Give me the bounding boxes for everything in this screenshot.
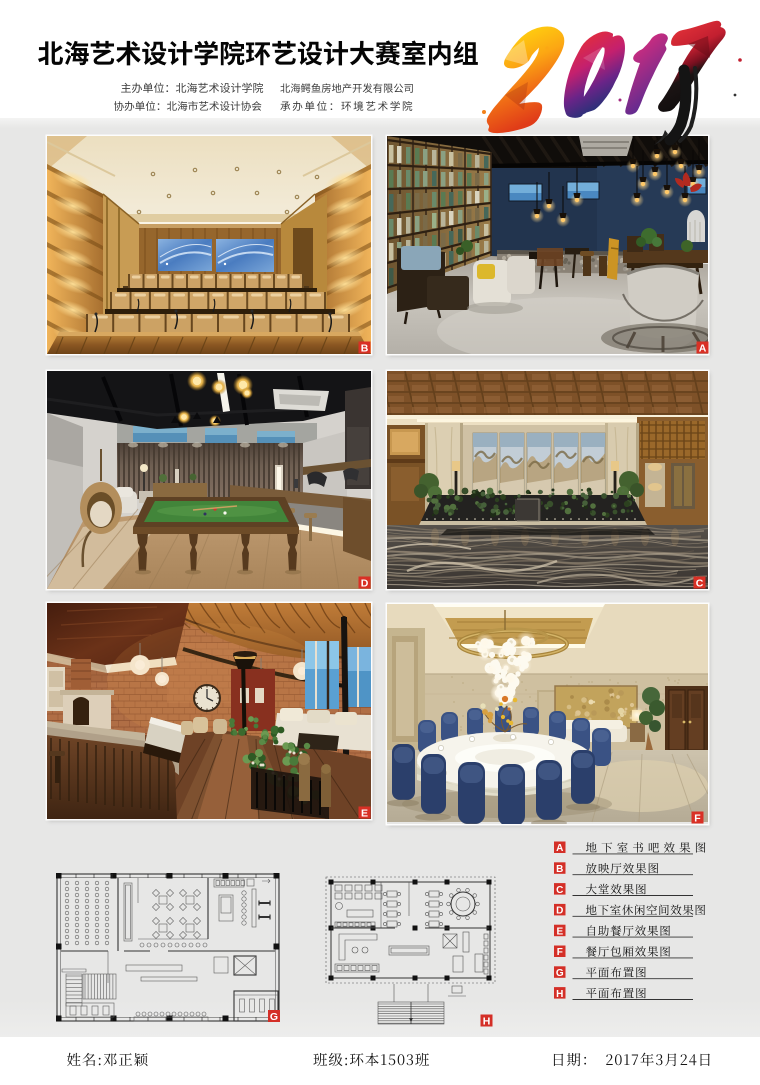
svg-text:H: H xyxy=(483,1015,491,1027)
svg-text:H: H xyxy=(556,989,563,1000)
svg-text:E: E xyxy=(361,807,368,819)
svg-text:G: G xyxy=(270,1011,278,1023)
svg-text:B: B xyxy=(556,864,563,875)
svg-text:E: E xyxy=(556,926,563,937)
svg-text:D: D xyxy=(556,906,563,917)
svg-text:C: C xyxy=(556,885,563,896)
svg-text:C: C xyxy=(696,577,704,589)
svg-text:B: B xyxy=(361,342,369,354)
svg-text:G: G xyxy=(556,968,564,979)
svg-text:D: D xyxy=(361,577,369,589)
svg-text:A: A xyxy=(699,342,707,354)
svg-text:F: F xyxy=(557,947,563,958)
svg-text:F: F xyxy=(694,812,701,824)
svg-text:A: A xyxy=(556,843,563,854)
